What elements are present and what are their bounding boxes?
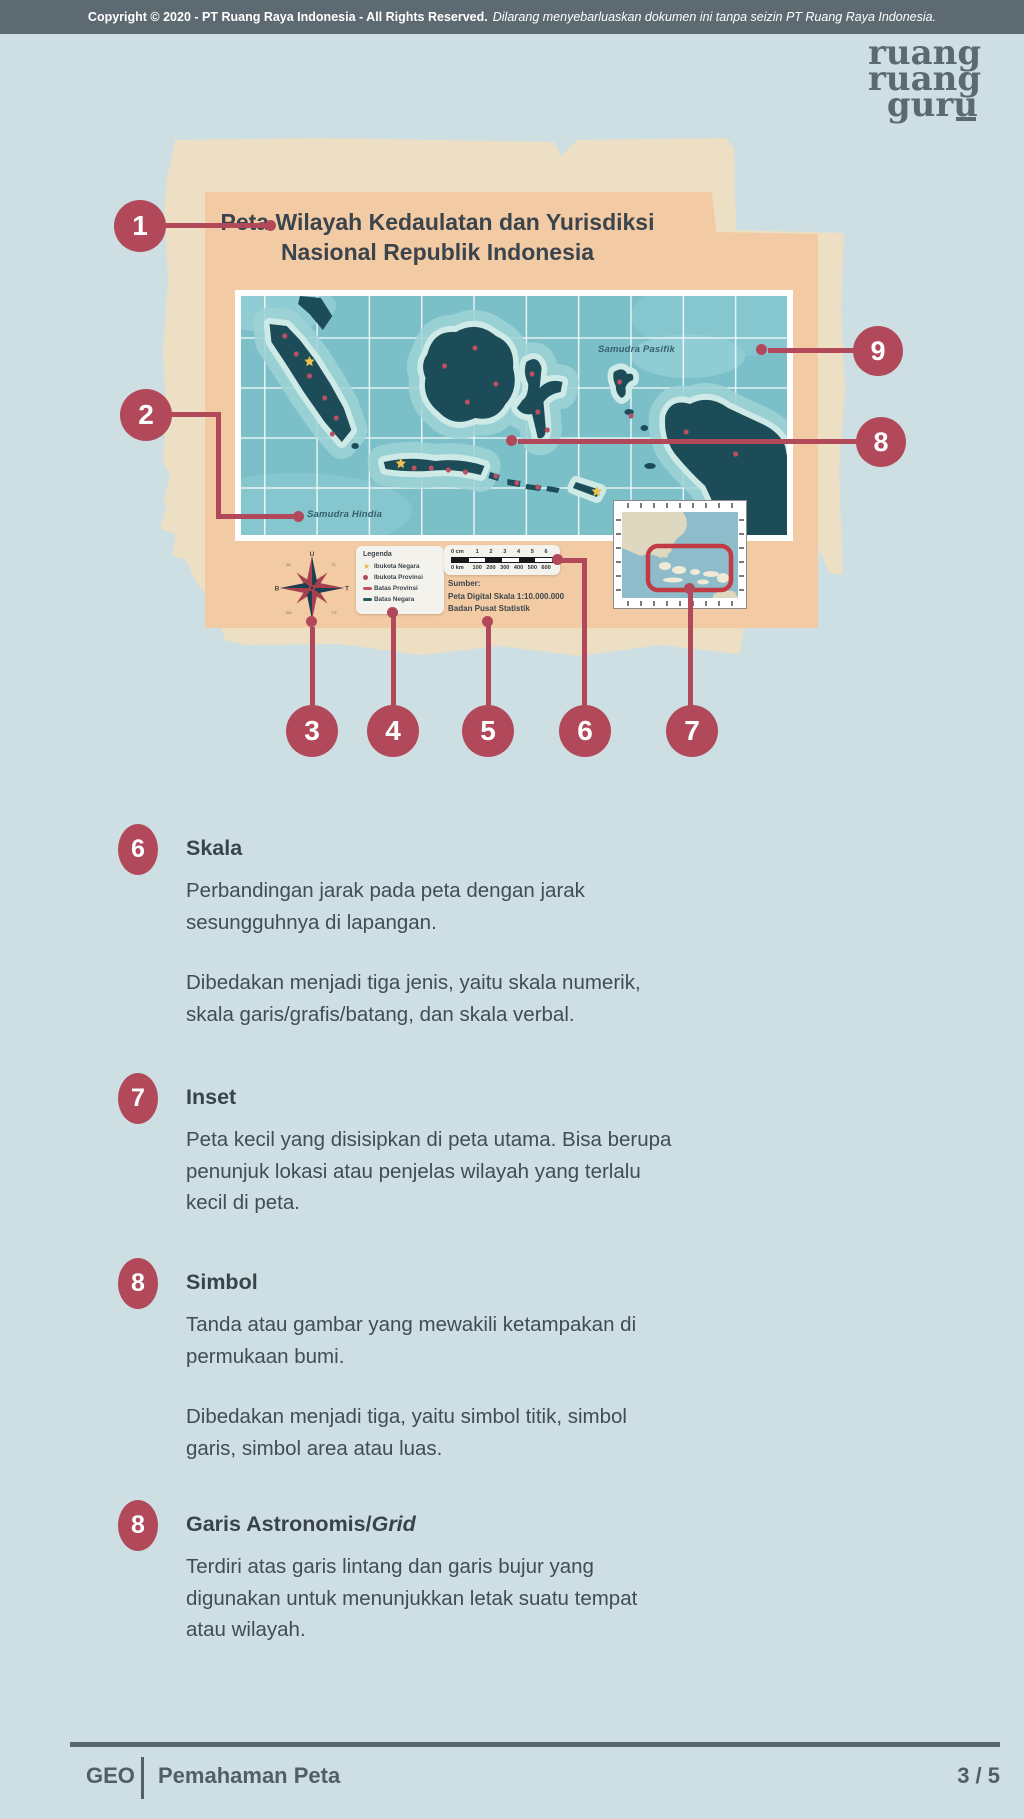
paper-torn-blob — [166, 504, 198, 532]
dot-icon — [363, 575, 368, 580]
source-line-1: Sumber: — [448, 578, 618, 591]
section-skala-paragraph-2: Dibedakan menjadi tiga jenis, yaitu skal… — [186, 967, 786, 1030]
callout-7-line — [688, 592, 693, 707]
callout-7-dot — [684, 583, 695, 594]
footer-page-number: 3 / 5 — [930, 1763, 1000, 1789]
callout-8-line — [518, 439, 858, 444]
callout-circle-4: 4 — [367, 705, 419, 757]
callout-circle-2: 2 — [120, 389, 172, 441]
legend-item-batas-provinsi: Batas Provinsi — [363, 583, 437, 594]
section-inset: 7 Inset Peta kecil yang disisipkan di pe… — [106, 1085, 826, 1248]
footer-separator — [141, 1757, 144, 1799]
ruangguru-logo: ruang ruang guru — [868, 40, 978, 118]
compass-west-label: B — [275, 586, 280, 593]
section-garis-astronomis-paragraph-1: Terdiri atas garis lintang dan garis buj… — [186, 1551, 786, 1646]
callout-5-dot — [482, 616, 493, 627]
source-line-3: Badan Pusat Statistik — [448, 603, 618, 616]
section-inset-paragraph-1: Peta kecil yang disisipkan di peta utama… — [186, 1124, 786, 1219]
scale-bar: 0 cm1 23 45 6 0 km100 200300 400500 600 — [444, 545, 560, 575]
callout-2-line-c — [216, 514, 298, 519]
callout-2-line-a — [170, 412, 220, 417]
map-title-line-2: Nasional Republik Indonesia — [205, 237, 670, 267]
scale-cm-row: 0 cm1 23 45 6 — [451, 548, 553, 556]
callout-9-dot — [756, 344, 767, 355]
compass-rose-icon: U T S B TL TG BD BL — [274, 550, 350, 626]
section-simbol-paragraph-1: Tanda atau gambar yang mewakili ketampak… — [186, 1309, 786, 1372]
callout-6-dot — [552, 554, 563, 565]
compass-ne-label: TL — [332, 562, 337, 567]
callout-2-line-b — [216, 412, 221, 517]
section-simbol-title: Simbol — [186, 1270, 786, 1295]
red-line-icon — [363, 587, 372, 589]
legend-item-batas-negara: Batas Negara — [363, 594, 437, 605]
callout-circle-8: 8 — [856, 417, 906, 467]
section-skala-paragraph-1: Perbandingan jarak pada peta dengan jara… — [186, 875, 786, 938]
callout-4-line — [391, 616, 396, 707]
callout-circle-5: 5 — [462, 705, 514, 757]
callout-circle-1: 1 — [114, 200, 166, 252]
callout-8-dot — [506, 435, 517, 446]
callout-6-line-b — [582, 558, 587, 707]
compass-sw-label: BD — [286, 610, 292, 615]
callout-4-dot — [387, 607, 398, 618]
compass-north-label: U — [310, 551, 315, 558]
section-garis-astronomis: 8 Garis Astronomis/Grid Terdiri atas gar… — [106, 1512, 826, 1675]
callout-circle-7: 7 — [666, 705, 718, 757]
teal-line-icon — [363, 598, 372, 600]
legend-title: Legenda — [363, 551, 437, 558]
copyright-text-bold: Copyright © 2020 - PT Ruang Raya Indones… — [88, 10, 488, 24]
footer-subject: GEO — [86, 1763, 135, 1789]
map-legend: Legenda ★ Ibukota Negara Ibukota Provins… — [356, 546, 444, 614]
compass-nw-label: BL — [286, 562, 292, 567]
footer-topic: Pemahaman Peta — [158, 1763, 340, 1789]
callout-circle-9: 9 — [853, 326, 903, 376]
callout-5-line — [486, 626, 491, 707]
sea-label-indian: Samudra Hindia — [307, 509, 382, 520]
footer-divider — [70, 1742, 1000, 1747]
map-title: Peta Wilayah Kedaulatan dan Yurisdiksi N… — [205, 207, 670, 267]
section-inset-badge: 7 — [118, 1073, 158, 1124]
inset-map — [613, 500, 747, 609]
sea-label-pacific: Samudra Pasifik — [598, 344, 675, 355]
section-skala: 6 Skala Perbandingan jarak pada peta den… — [106, 836, 826, 1059]
copyright-bar: Copyright © 2020 - PT Ruang Raya Indones… — [0, 0, 1024, 34]
callout-2-dot — [293, 511, 304, 522]
scale-bar-graphic — [451, 557, 553, 563]
callout-circle-6: 6 — [559, 705, 611, 757]
callout-3-dot — [306, 616, 317, 627]
star-icon: ★ — [363, 563, 370, 571]
section-skala-badge: 6 — [118, 824, 158, 875]
section-simbol-paragraph-2: Dibedakan menjadi tiga, yaitu simbol tit… — [186, 1401, 786, 1464]
logo-underscore — [956, 117, 976, 121]
legend-item-ibukota-provinsi: Ibukota Provinsi — [363, 572, 437, 583]
source-line-2: Peta Digital Skala 1:10.000.000 — [448, 591, 618, 604]
document-page: Copyright © 2020 - PT Ruang Raya Indones… — [0, 0, 1024, 1819]
section-simbol: 8 Simbol Tanda atau gambar yang mewakili… — [106, 1270, 826, 1493]
callout-circle-3: 3 — [286, 705, 338, 757]
section-inset-title: Inset — [186, 1085, 786, 1110]
scale-km-row: 0 km100 200300 400500 600 — [451, 564, 553, 572]
section-simbol-badge: 8 — [118, 1258, 158, 1309]
callout-9-line — [768, 348, 856, 353]
legend-item-ibukota-negara: ★ Ibukota Negara — [363, 561, 437, 572]
callout-1-line — [164, 223, 266, 228]
compass-east-label: T — [345, 586, 349, 593]
map-source: Sumber: Peta Digital Skala 1:10.000.000 … — [448, 578, 618, 616]
section-skala-title: Skala — [186, 836, 786, 861]
compass-se-label: TG — [331, 610, 337, 615]
section-garis-astronomis-title: Garis Astronomis/Grid — [186, 1512, 786, 1537]
copyright-text-italic: Dilarang menyebarluaskan dokumen ini tan… — [493, 10, 936, 24]
section-garis-astronomis-badge: 8 — [118, 1500, 158, 1551]
callout-1-dot — [265, 220, 276, 231]
callout-3-line — [310, 627, 315, 707]
